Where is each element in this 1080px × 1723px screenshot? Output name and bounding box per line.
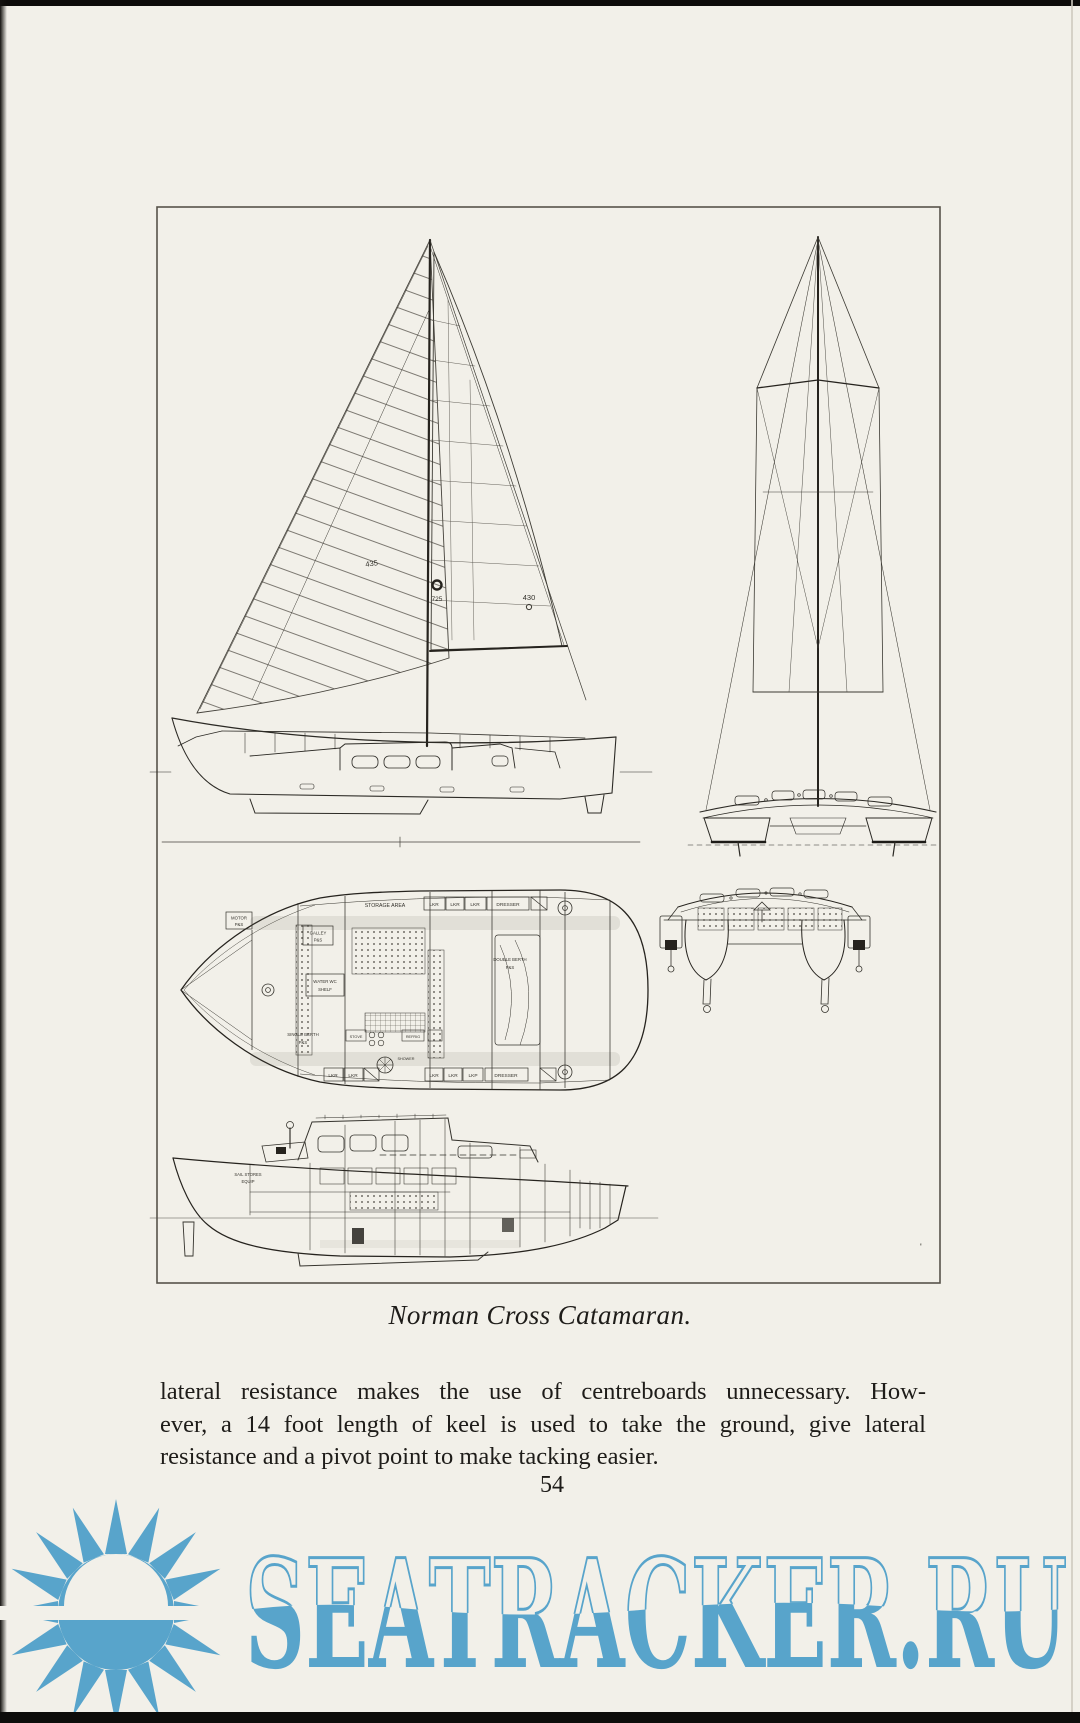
insignia-number: 725 bbox=[432, 596, 443, 603]
interior-profile: SAIL STORES EQUIP ' bbox=[150, 1114, 922, 1266]
hull-profile bbox=[150, 718, 652, 847]
label-lkr: LKR bbox=[470, 902, 480, 908]
label-lkr: LKR bbox=[429, 902, 439, 908]
stray-tick-mark: ' bbox=[920, 1242, 922, 1252]
label-lkr: LKR bbox=[450, 902, 460, 908]
label-ps: P&S bbox=[506, 965, 515, 970]
deck-plan: STORAGE AREA LKR LKR LKR DRESSER LKR LKR… bbox=[181, 890, 648, 1090]
label-galley: GALLEY bbox=[310, 931, 327, 936]
body-text: lateral resistance makes the use of cent… bbox=[160, 1376, 926, 1474]
mast bbox=[427, 240, 586, 746]
mainsail-emblem-icon bbox=[526, 604, 531, 609]
steering-wheel-icon bbox=[377, 1057, 393, 1073]
label-refrig: REFRIG bbox=[406, 1035, 420, 1039]
hull-cross-section bbox=[660, 888, 870, 1013]
front-hull-view bbox=[688, 790, 938, 856]
sun-over-sea-icon bbox=[0, 1499, 245, 1723]
figure-caption: Norman Cross Catamaran. bbox=[0, 1300, 1080, 1331]
label-sail-stores: SAIL STORES bbox=[234, 1172, 261, 1177]
mainsail bbox=[431, 252, 562, 650]
label-lkr: LKR bbox=[348, 1073, 358, 1079]
label-single-berth: SINGLE BERTH bbox=[287, 1032, 318, 1037]
label-lkr: LKR bbox=[328, 1073, 338, 1079]
label-shelf: SHELF bbox=[318, 987, 332, 992]
side-sail-plan: 435 725 430 bbox=[150, 240, 652, 847]
label-double-berth: DOUBLE BERTH bbox=[493, 957, 526, 962]
label-dresser: DRESSER bbox=[494, 1073, 518, 1079]
label-ps: P&S bbox=[235, 922, 244, 927]
label-ps: P&S bbox=[299, 1040, 308, 1045]
label-storage-area: STORAGE AREA bbox=[365, 903, 406, 909]
plan-top-locker-row bbox=[424, 897, 547, 910]
ground-keel bbox=[298, 1252, 488, 1266]
front-sail-plan bbox=[688, 237, 938, 856]
bow-fin bbox=[183, 1222, 194, 1256]
body-line: ever, a 14 foot length of keel is used t… bbox=[160, 1409, 926, 1442]
body-line: resistance and a pivot point to make tac… bbox=[160, 1441, 926, 1474]
label-water-wc: WATER WC bbox=[313, 979, 336, 984]
plan-bottom-locker-row bbox=[324, 1068, 556, 1081]
body-line: lateral resistance makes the use of cent… bbox=[160, 1376, 926, 1409]
label-dresser: DRESSER bbox=[496, 902, 520, 908]
label-lkp: LKP bbox=[468, 1073, 477, 1079]
label-motor: MOTOR bbox=[231, 916, 247, 921]
figure-frame bbox=[157, 207, 940, 1283]
label-stove: STOVE bbox=[350, 1035, 363, 1039]
bow-gear bbox=[262, 1122, 308, 1163]
mainsail-number: 430 bbox=[523, 593, 536, 602]
scanned-book-page: { "page": { "background_color": "#f2f0e9… bbox=[0, 0, 1080, 1723]
label-ps: P&S bbox=[314, 938, 323, 943]
genoa-sail bbox=[197, 240, 449, 713]
label-lkr: LKR bbox=[448, 1073, 458, 1079]
stove-burner-icons bbox=[369, 1032, 384, 1046]
label-equip: EQUIP bbox=[241, 1179, 254, 1184]
scan-edge-bottom bbox=[0, 1712, 1080, 1723]
label-shower: SHOWER bbox=[397, 1057, 414, 1061]
catamaran-figure: 435 725 430 bbox=[0, 0, 1080, 1490]
genoa-sail-number: 435 bbox=[365, 558, 379, 569]
label-lkr: LKR bbox=[429, 1073, 439, 1079]
watermark: SEATRACKER.RU SEATRACKER.RU bbox=[0, 1490, 1080, 1723]
propeller-icons bbox=[704, 1006, 829, 1013]
